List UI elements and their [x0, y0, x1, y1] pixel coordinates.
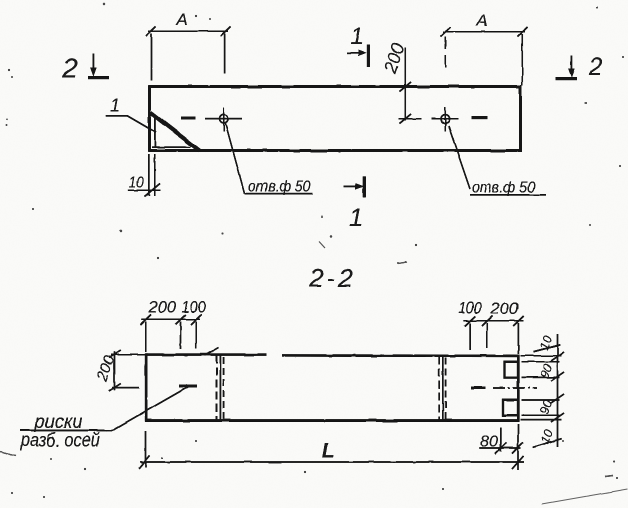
- svg-text:100: 100: [182, 298, 206, 317]
- svg-text:A: A: [175, 10, 187, 29]
- svg-text:2: 2: [61, 53, 78, 84]
- svg-text:2: 2: [588, 53, 603, 81]
- svg-text:80: 80: [480, 434, 498, 451]
- svg-text:разб. осей: разб. осей: [20, 431, 100, 452]
- svg-text:A: A: [475, 11, 487, 30]
- svg-text:L: L: [322, 441, 334, 463]
- svg-text:1: 1: [350, 23, 363, 50]
- svg-text:100: 100: [458, 299, 482, 318]
- svg-text:200: 200: [489, 299, 519, 318]
- svg-text:1: 1: [349, 204, 363, 232]
- svg-text:2-2: 2-2: [308, 263, 356, 293]
- svg-text:отв.ф 50: отв.ф 50: [472, 180, 535, 197]
- svg-text:200: 200: [148, 298, 177, 317]
- svg-text:отв.ф 50: отв.ф 50: [248, 179, 311, 196]
- svg-text:10: 10: [129, 175, 144, 192]
- svg-text:1: 1: [110, 96, 120, 116]
